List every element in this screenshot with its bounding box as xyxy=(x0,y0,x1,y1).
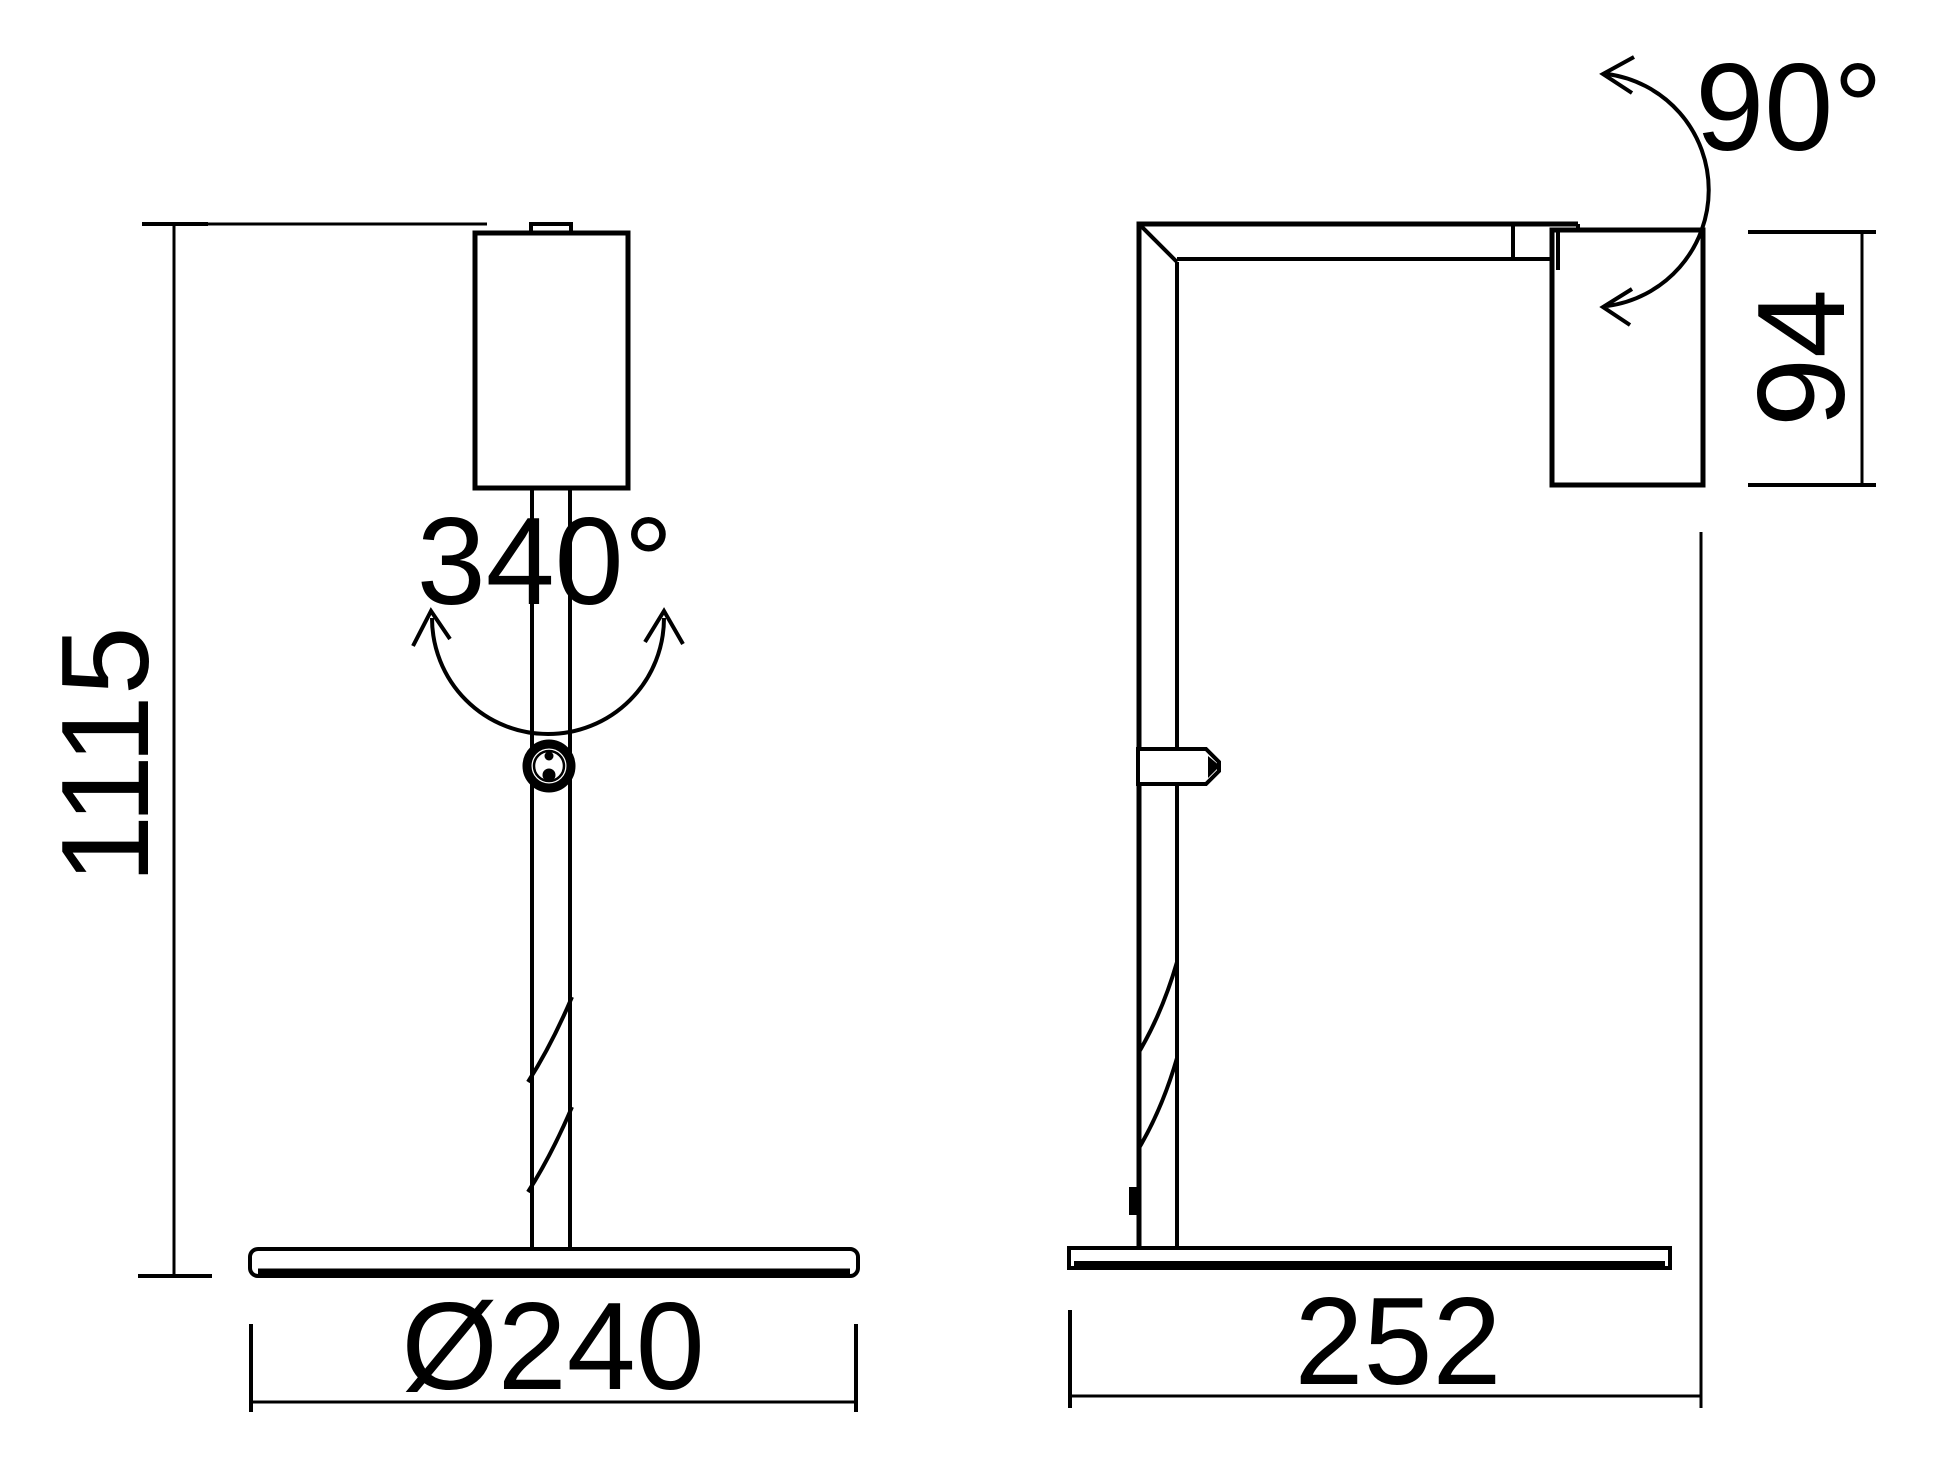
front-view: 1115 340° xyxy=(37,224,858,1416)
side-lamp-body xyxy=(1069,224,1703,1268)
swivel-arc-curve xyxy=(432,618,664,734)
head-height-dimension-label: 94 xyxy=(1733,289,1871,427)
side-corner-chamfer xyxy=(1141,226,1177,262)
front-stem-break-mark-1 xyxy=(528,997,572,1082)
side-knob-outline xyxy=(1138,749,1219,784)
swivel-angle-label: 340° xyxy=(417,493,673,631)
side-pole-outer-line xyxy=(1139,224,1578,1249)
depth-dimension-label: 252 xyxy=(1295,1273,1502,1411)
height-dimension-label: 1115 xyxy=(37,626,175,883)
tilt-angle-label: 90° xyxy=(1695,39,1883,177)
front-swivel-arc: 340° xyxy=(413,493,683,734)
swivel-knob-dot-top xyxy=(545,752,554,761)
front-height-dimension: 1115 xyxy=(37,224,487,1276)
swivel-knob-dot-bottom xyxy=(543,769,556,782)
side-adjustment-knob xyxy=(1138,749,1220,784)
side-switch-mark xyxy=(1129,1187,1139,1215)
front-swivel-knob xyxy=(527,744,571,788)
front-stem-break-mark-2 xyxy=(528,1107,572,1192)
side-head-height-dimension: 94 xyxy=(1733,232,1876,485)
side-depth-dimension: 252 xyxy=(1070,532,1701,1411)
front-lamp-body xyxy=(250,224,858,1276)
side-view: 90° 94 252 xyxy=(1069,39,1883,1411)
front-diameter-dimension: Ø240 xyxy=(251,1278,856,1416)
side-pole-break-mark-1 xyxy=(1139,962,1177,1052)
diameter-dimension-label: Ø240 xyxy=(401,1278,704,1416)
technical-drawing-canvas: 1115 340° xyxy=(0,0,1946,1479)
lamp-dimension-drawing: 1115 340° xyxy=(0,0,1946,1479)
side-pole-break-mark-2 xyxy=(1139,1058,1177,1148)
front-lamp-head xyxy=(475,233,628,488)
